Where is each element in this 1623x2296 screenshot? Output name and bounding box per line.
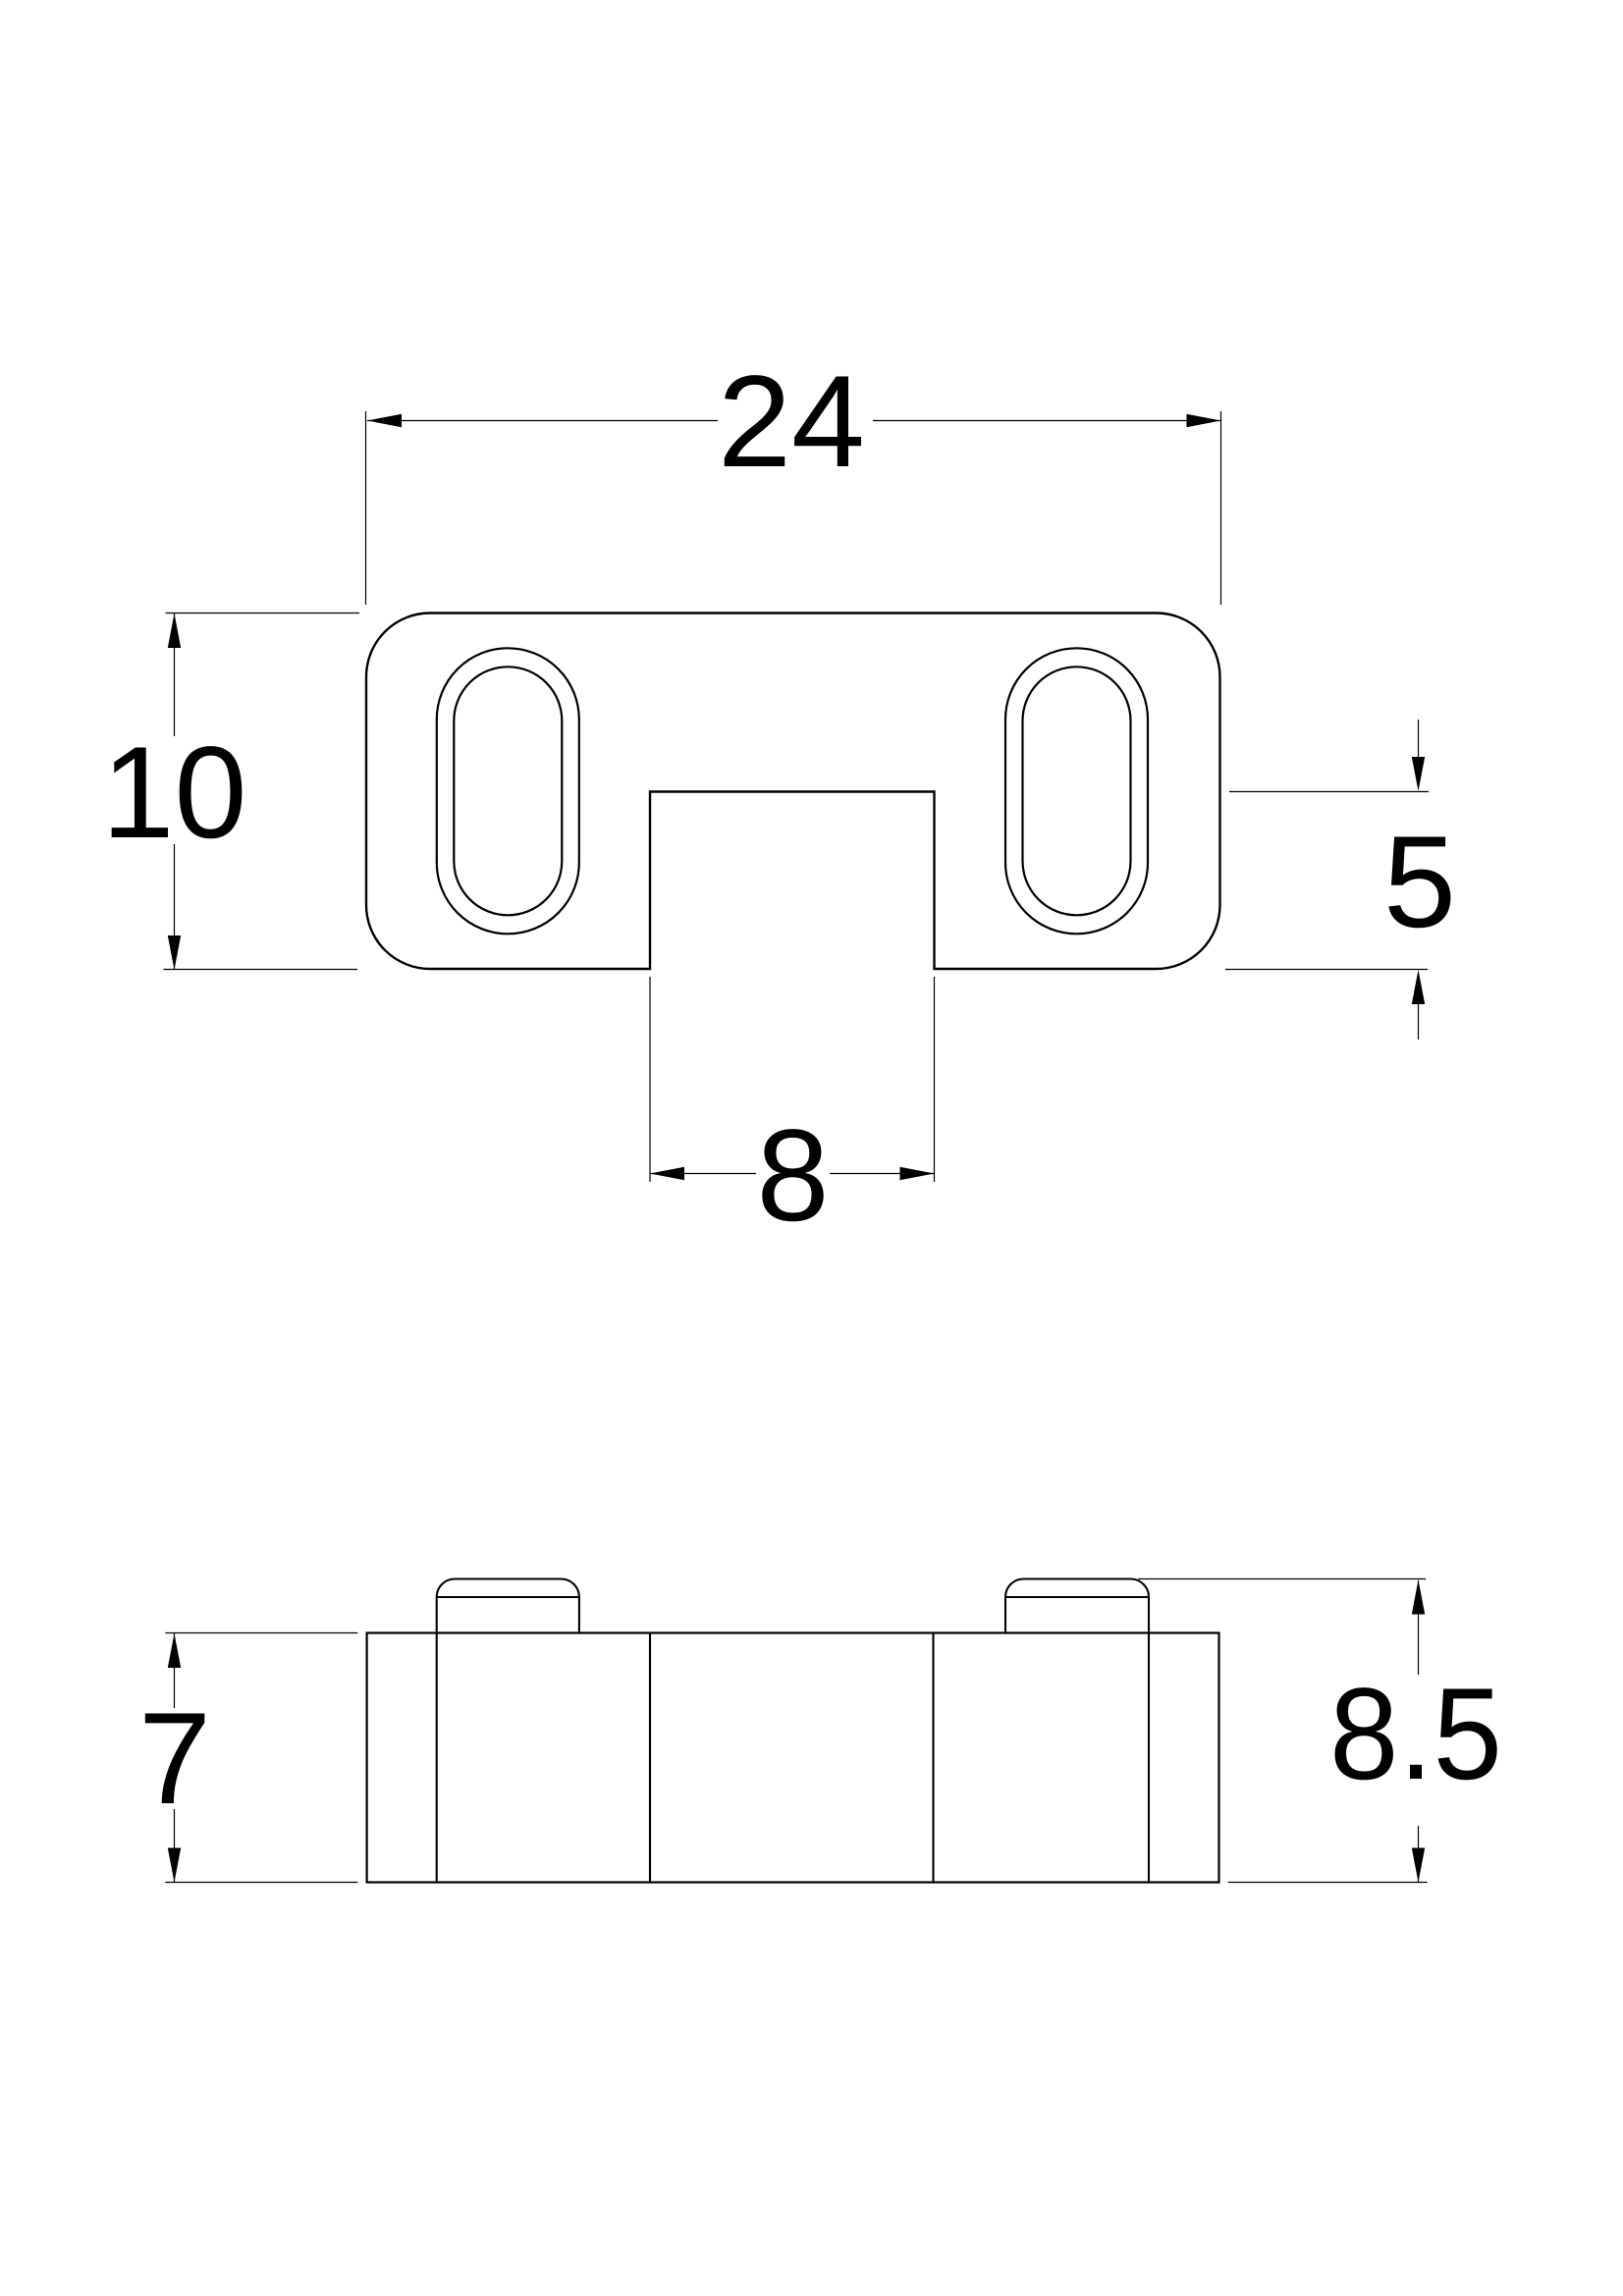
svg-text:7: 7 <box>138 1686 211 1832</box>
svg-text:8.5: 8.5 <box>1329 1662 1502 1807</box>
svg-text:24: 24 <box>718 349 865 495</box>
svg-text:5: 5 <box>1383 810 1456 955</box>
svg-text:8: 8 <box>757 1103 830 1249</box>
svg-text:10: 10 <box>102 721 247 866</box>
